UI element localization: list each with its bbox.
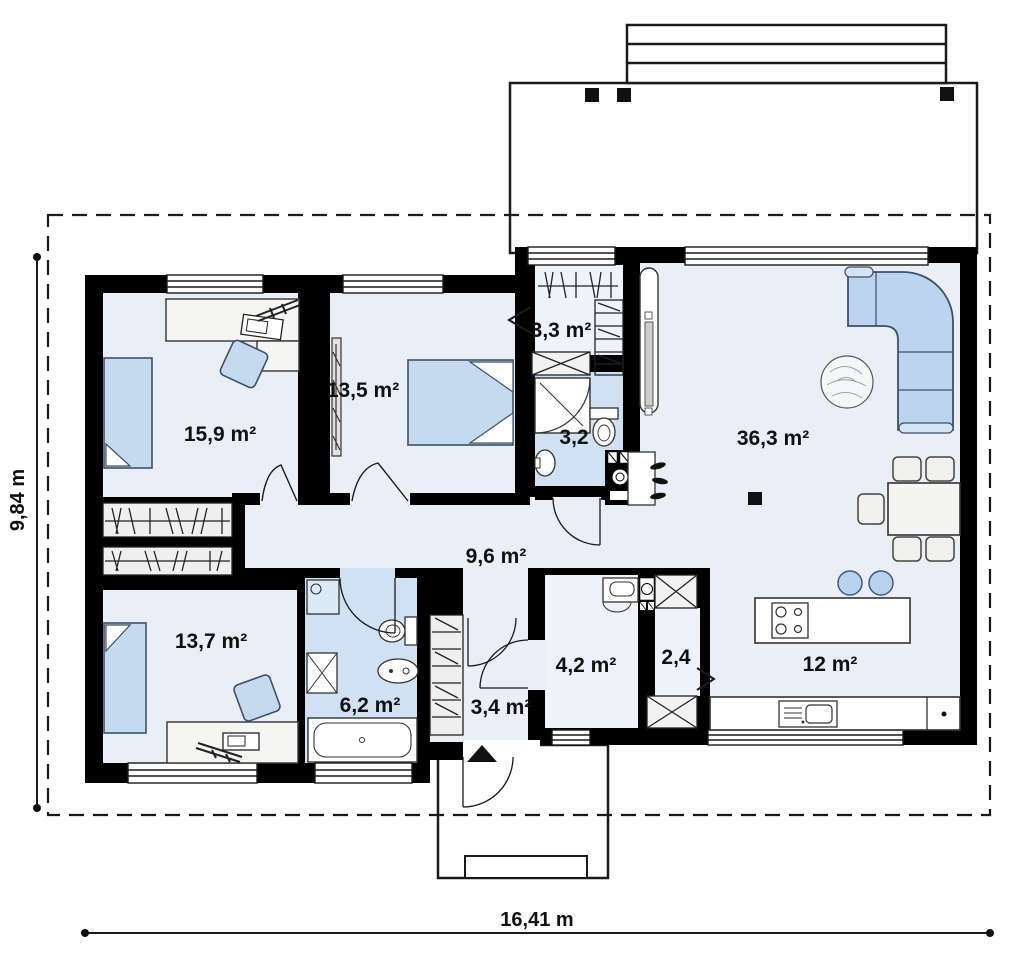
terrace-post-icon	[585, 88, 599, 102]
room-label-bedroom-2: 13,5 m²	[327, 379, 399, 402]
window-bedroom-1	[167, 275, 263, 293]
dimension-width: 16,41 m	[81, 909, 994, 937]
terrace	[510, 25, 977, 253]
room-label-utility: 4,2 m²	[556, 654, 617, 677]
room-label-kitchen: 12 m²	[803, 653, 858, 676]
dining-chair-icon	[926, 457, 954, 481]
window-bedroom-3	[128, 763, 257, 783]
dimension-depth: 9,84 m	[7, 253, 41, 812]
shower-icon	[535, 378, 590, 433]
floor-plan-page: 16,41 m 9,84 m	[0, 0, 1024, 968]
terrace-steps	[627, 25, 946, 83]
room-label-bedroom-1: 15,9 m²	[184, 423, 256, 446]
sofa-cushion-icon	[899, 423, 953, 433]
dining-chair-icon	[893, 537, 921, 561]
window-bathroom-main	[315, 763, 412, 783]
dining-chair-icon	[858, 494, 884, 524]
floor-plan-drawing: 16,41 m 9,84 m	[0, 0, 1024, 968]
dining-chair-icon	[926, 537, 954, 561]
room-label-pantry: 2,4	[661, 646, 691, 669]
sofa-cushion-icon	[845, 267, 873, 277]
washing-machine-icon	[307, 580, 339, 614]
laptop-icon	[223, 733, 259, 750]
room-label-bathroom-small: 3,2	[559, 426, 588, 449]
window-bedroom-2	[343, 275, 443, 293]
bar-stool-icon	[869, 571, 893, 595]
shower-icon	[307, 653, 337, 693]
column-icon	[748, 492, 762, 505]
closet-row-a	[103, 503, 232, 537]
window-living-terrace	[685, 247, 928, 265]
kitchen-sink-icon	[779, 701, 837, 727]
bar-stool-icon	[838, 571, 862, 595]
width-dimension-label: 16,41 m	[500, 909, 573, 931]
terrace-post-icon	[940, 87, 954, 101]
window-kitchen	[708, 730, 903, 745]
terrace-post-icon	[617, 88, 631, 102]
vestibule-closet	[430, 615, 463, 735]
radiator-icon	[640, 268, 658, 415]
window-utility	[552, 730, 590, 745]
room-label-vestibule: 3,4 m²	[471, 696, 532, 719]
dining-chair-icon	[893, 457, 921, 481]
sink-icon	[378, 659, 418, 683]
room-label-bathroom-main: 6,2 m²	[340, 694, 401, 717]
room-label-living: 36,3 m²	[737, 427, 809, 450]
room-label-hall: 9,6 m²	[466, 545, 527, 568]
dining-table-icon	[888, 483, 960, 535]
sink-icon	[535, 450, 555, 476]
room-label-bedroom-3: 13,7 m²	[175, 630, 247, 653]
depth-dimension-label: 9,84 m	[7, 469, 29, 531]
round-rug-icon	[821, 356, 873, 408]
toilet-icon	[379, 617, 417, 645]
room-hall	[245, 497, 640, 568]
cooktop-icon	[772, 603, 808, 638]
porch-step	[465, 856, 587, 878]
window-wardrobe	[528, 247, 615, 265]
bathtub-icon	[308, 718, 417, 762]
room-label-wardrobe: 3,3 m²	[531, 319, 592, 342]
